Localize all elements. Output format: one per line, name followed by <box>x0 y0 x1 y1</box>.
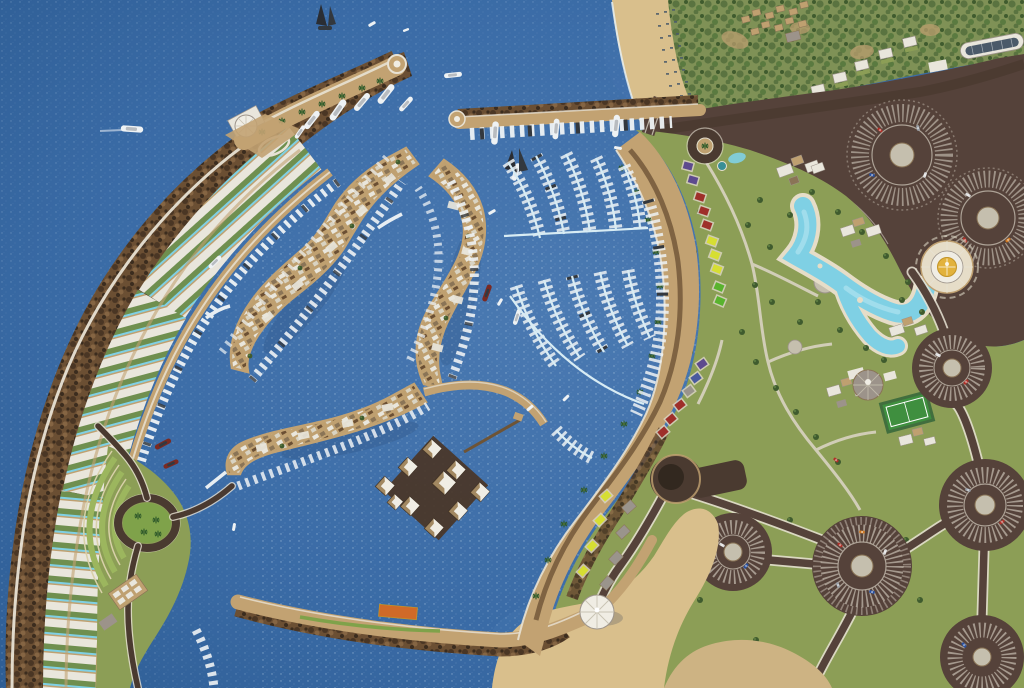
teal-pavilion <box>718 162 727 171</box>
roundabout-north <box>687 128 723 164</box>
scene-canvas <box>0 0 1024 688</box>
parking-circle-c5 <box>912 328 992 408</box>
plaza-disc-b <box>788 340 802 354</box>
parking-circle-c1 <box>812 516 912 616</box>
aerial-marina-render <box>0 0 1024 688</box>
